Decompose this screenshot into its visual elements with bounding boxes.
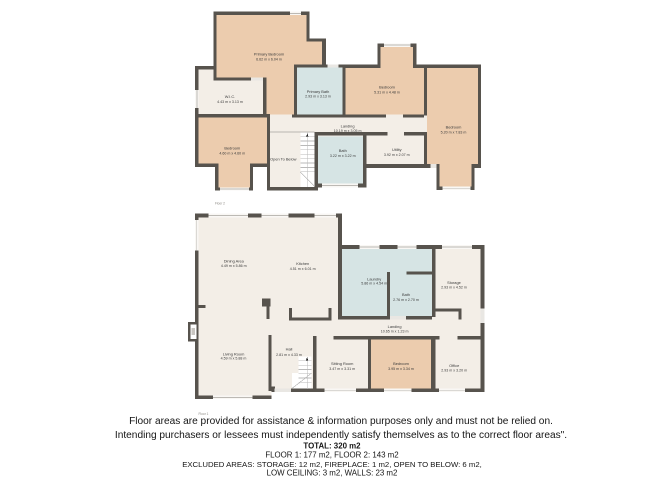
svg-text:10.19 m x 3.05 m: 10.19 m x 3.05 m <box>334 129 362 133</box>
svg-text:Office: Office <box>449 363 459 368</box>
svg-text:Utility: Utility <box>392 147 402 152</box>
svg-text:Floor areas are provided for a: Floor areas are provided for assistance … <box>129 416 553 427</box>
svg-text:Bedroom: Bedroom <box>379 85 395 90</box>
svg-text:Storage: Storage <box>447 280 461 285</box>
svg-text:Dining Area: Dining Area <box>224 258 245 263</box>
svg-text:Hall: Hall <box>286 347 293 352</box>
svg-text:Kitchen: Kitchen <box>296 261 309 266</box>
svg-text:Bedroom: Bedroom <box>393 361 409 366</box>
svg-text:2.93 m x 3.13 m: 2.93 m x 3.13 m <box>305 95 331 99</box>
svg-text:2.93 m x 3.20 m: 2.93 m x 3.20 m <box>441 369 467 373</box>
svg-text:Intending purchasers or lessee: Intending purchasers or lessees must ind… <box>115 430 567 441</box>
svg-text:TOTAL: 320 m2: TOTAL: 320 m2 <box>303 442 361 451</box>
svg-text:Landing: Landing <box>388 324 402 329</box>
svg-text:5.31 m x 4.48 m: 5.31 m x 4.48 m <box>374 90 400 94</box>
svg-text:5.86 m x 4.54 m: 5.86 m x 4.54 m <box>361 282 387 286</box>
svg-text:LOW CEILING: 3 m2, WALLS: 23 m: LOW CEILING: 3 m2, WALLS: 23 m2 <box>267 469 398 478</box>
svg-text:Bath: Bath <box>402 292 410 297</box>
svg-text:Primary Bath: Primary Bath <box>307 89 330 94</box>
svg-text:Bath: Bath <box>339 148 347 153</box>
svg-text:FLOOR 1: 177 m2, FLOOR 2: 143: FLOOR 1: 177 m2, FLOOR 2: 143 m2 <box>265 451 398 460</box>
svg-text:6.62 m x 6.04 m: 6.62 m x 6.04 m <box>256 57 282 61</box>
svg-text:W.I.C.: W.I.C. <box>225 94 236 99</box>
svg-text:2.93 m x 4.52 m: 2.93 m x 4.52 m <box>441 286 467 290</box>
svg-text:4.51 m x 6.01 m: 4.51 m x 6.01 m <box>290 267 316 271</box>
svg-text:3.47 m x 3.31 m: 3.47 m x 3.31 m <box>329 367 355 371</box>
svg-text:2.76 m x 2.70 m: 2.76 m x 2.70 m <box>393 298 419 302</box>
svg-text:Landing: Landing <box>341 124 355 129</box>
svg-text:4.60 m x 4.60 m: 4.60 m x 4.60 m <box>219 151 245 155</box>
svg-text:10.65 m x 1.23 m: 10.65 m x 1.23 m <box>381 329 409 333</box>
svg-text:Open To Below: Open To Below <box>270 157 297 162</box>
svg-text:4.43 m x 3.13 m: 4.43 m x 3.13 m <box>217 100 243 104</box>
svg-text:Bedroom: Bedroom <box>224 145 240 150</box>
svg-text:Primary Bedroom: Primary Bedroom <box>254 51 284 56</box>
svg-text:3.95 m x 3.34 m: 3.95 m x 3.34 m <box>388 367 414 371</box>
svg-text:2.81 m x 4.33 m: 2.81 m x 4.33 m <box>276 353 302 357</box>
svg-text:3.22 m x 3.22 m: 3.22 m x 3.22 m <box>330 154 356 158</box>
svg-text:4.59 m x 5.88 m: 4.59 m x 5.88 m <box>221 357 247 361</box>
svg-text:Floor 2: Floor 2 <box>215 201 225 205</box>
svg-text:Bedroom: Bedroom <box>446 125 462 130</box>
svg-text:4.49 m x 5.86 m: 4.49 m x 5.86 m <box>221 264 247 268</box>
svg-text:5.20 m x 7.83 m: 5.20 m x 7.83 m <box>441 130 467 134</box>
svg-text:3.92 m x 2.07 m: 3.92 m x 2.07 m <box>384 153 410 157</box>
svg-text:Sitting Room: Sitting Room <box>331 361 353 366</box>
